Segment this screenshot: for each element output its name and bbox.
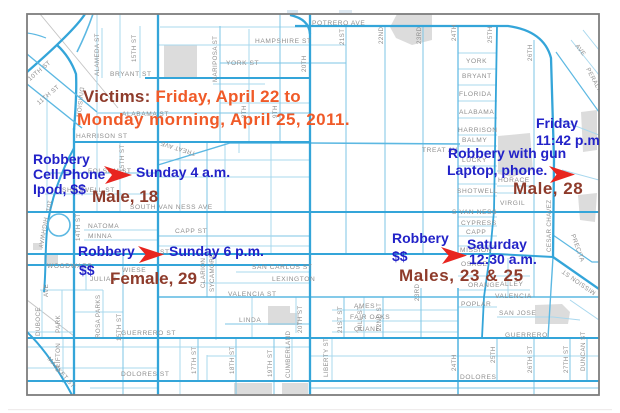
svg-text:15TH ST: 15TH ST [116,313,123,341]
svg-text:Male, 28: Male, 28 [513,179,583,198]
svg-text:PARK: PARK [55,315,62,333]
svg-text:SHOTWELL: SHOTWELL [457,188,498,195]
svg-text:BRYANT ST: BRYANT ST [110,71,152,78]
svg-text:Saturday: Saturday [467,236,527,252]
svg-text:$$: $$ [392,248,408,264]
svg-text:Female, 29: Female, 29 [110,269,197,288]
svg-text:Robbery: Robbery [78,243,135,259]
svg-text:CUMBERLAND: CUMBERLAND [285,331,292,378]
svg-text:VALENCIA: VALENCIA [495,293,532,300]
svg-text:POPLAR: POPLAR [461,301,491,308]
svg-text:14TH ST: 14TH ST [75,213,82,241]
svg-text:CAPP ST: CAPP ST [175,228,207,235]
svg-text:ALABAMA: ALABAMA [459,109,494,116]
svg-text:Laptop, phone.: Laptop, phone. [447,162,547,178]
svg-text:22ND: 22ND [378,26,385,44]
svg-text:BRYANT: BRYANT [462,73,492,80]
svg-text:HARRISON: HARRISON [458,127,498,134]
svg-text:Male, 18: Male, 18 [92,187,158,206]
svg-text:Friday: Friday [536,115,578,131]
svg-text:CAPP: CAPP [466,229,486,236]
svg-text:BALMY: BALMY [462,137,487,144]
svg-text:21ST: 21ST [339,29,346,45]
svg-text:VIRGIL: VIRGIL [500,200,525,207]
svg-text:20TH ST: 20TH ST [297,305,304,333]
svg-text:HAMPSHIRE ST: HAMPSHIRE ST [255,38,312,45]
svg-text:Sunday 6 p.m.: Sunday 6 p.m. [169,243,264,259]
svg-text:23RD: 23RD [414,283,421,301]
svg-text:20TH: 20TH [301,55,308,72]
svg-text:25TH: 25TH [487,26,494,43]
svg-text:17TH ST: 17TH ST [191,346,198,374]
svg-text:Sunday 4 a.m.: Sunday 4 a.m. [136,164,230,180]
svg-text:LINDA: LINDA [239,317,261,324]
svg-text:DOLORES ST: DOLORES ST [121,371,170,378]
svg-text:HARRISON ST: HARRISON ST [76,133,128,140]
svg-text:Robbery with gun: Robbery with gun [448,145,566,161]
svg-text:21ST ST: 21ST ST [337,306,344,333]
svg-text:YORK: YORK [466,58,487,65]
svg-text:26TH ST: 26TH ST [527,345,534,373]
svg-text:HILL ST: HILL ST [357,306,364,331]
svg-text:SAN CARLOS ST: SAN CARLOS ST [252,264,313,271]
svg-text:26TH: 26TH [527,44,534,61]
svg-text:ALAMEDA ST: ALAMEDA ST [94,33,101,76]
svg-text:LIBERTY ST: LIBERTY ST [323,338,330,377]
svg-text:NATOMA: NATOMA [88,223,119,230]
svg-text:GUERRERO ST: GUERRERO ST [121,330,176,337]
svg-text:27TH ST: 27TH ST [563,345,570,373]
svg-text:25TH: 25TH [490,346,497,363]
svg-text:18TH ST: 18TH ST [229,346,236,374]
svg-text:SYCAMORE: SYCAMORE [209,253,216,292]
svg-text:AVE: AVE [43,284,50,297]
svg-text:Victims: Friday, April 22 to: Victims: Friday, April 22 to [83,87,301,106]
svg-text:DUBOCE: DUBOCE [35,307,42,336]
svg-text:SAN JOSE: SAN JOSE [499,310,536,317]
svg-text:S VAN NESS: S VAN NESS [452,209,497,216]
svg-text:MINNA: MINNA [88,233,112,240]
svg-text:YORK ST: YORK ST [226,60,259,67]
svg-text:Monday morning, April 25, 2011: Monday morning, April 25, 2011. [77,110,350,129]
svg-text:22ND ST: 22ND ST [376,303,383,331]
svg-text:CYPRESS: CYPRESS [461,220,497,227]
svg-text:Cell Phone: Cell Phone [33,166,106,182]
svg-text:GUERRERO: GUERRERO [505,332,548,339]
svg-text:19TH ST: 19TH ST [267,349,274,377]
svg-text:CLARION: CLARION [200,258,207,288]
svg-text:15TH ST: 15TH ST [131,34,138,62]
svg-text:DOLORES: DOLORES [460,374,496,381]
svg-text:FLORIDA: FLORIDA [459,91,492,98]
svg-text:Ipod, $$: Ipod, $$ [33,181,86,197]
svg-text:24TH: 24TH [451,24,458,41]
svg-text:LEXINGTON: LEXINGTON [272,276,315,283]
svg-text:CESAR CHAVEZ: CESAR CHAVEZ [546,200,553,252]
svg-text:ROSA PARKS: ROSA PARKS [95,295,102,338]
svg-text:MARIPOSA ST: MARIPOSA ST [212,36,219,82]
svg-text:24TH: 24TH [451,354,458,371]
svg-text:Robbery: Robbery [33,151,90,167]
svg-text:VALENCIA ST: VALENCIA ST [228,291,277,298]
svg-text:15TH ST: 15TH ST [119,144,126,172]
svg-text:Males, 23 & 25: Males, 23 & 25 [399,266,524,285]
svg-text:Robbery: Robbery [392,230,449,246]
svg-text:23RD: 23RD [416,26,423,44]
svg-text:12:30 a.m.: 12:30 a.m. [469,251,537,267]
svg-text:POTRERO AVE: POTRERO AVE [312,20,365,27]
svg-text:DUNCAN ST: DUNCAN ST [580,331,587,371]
svg-text:$$: $$ [79,262,95,278]
